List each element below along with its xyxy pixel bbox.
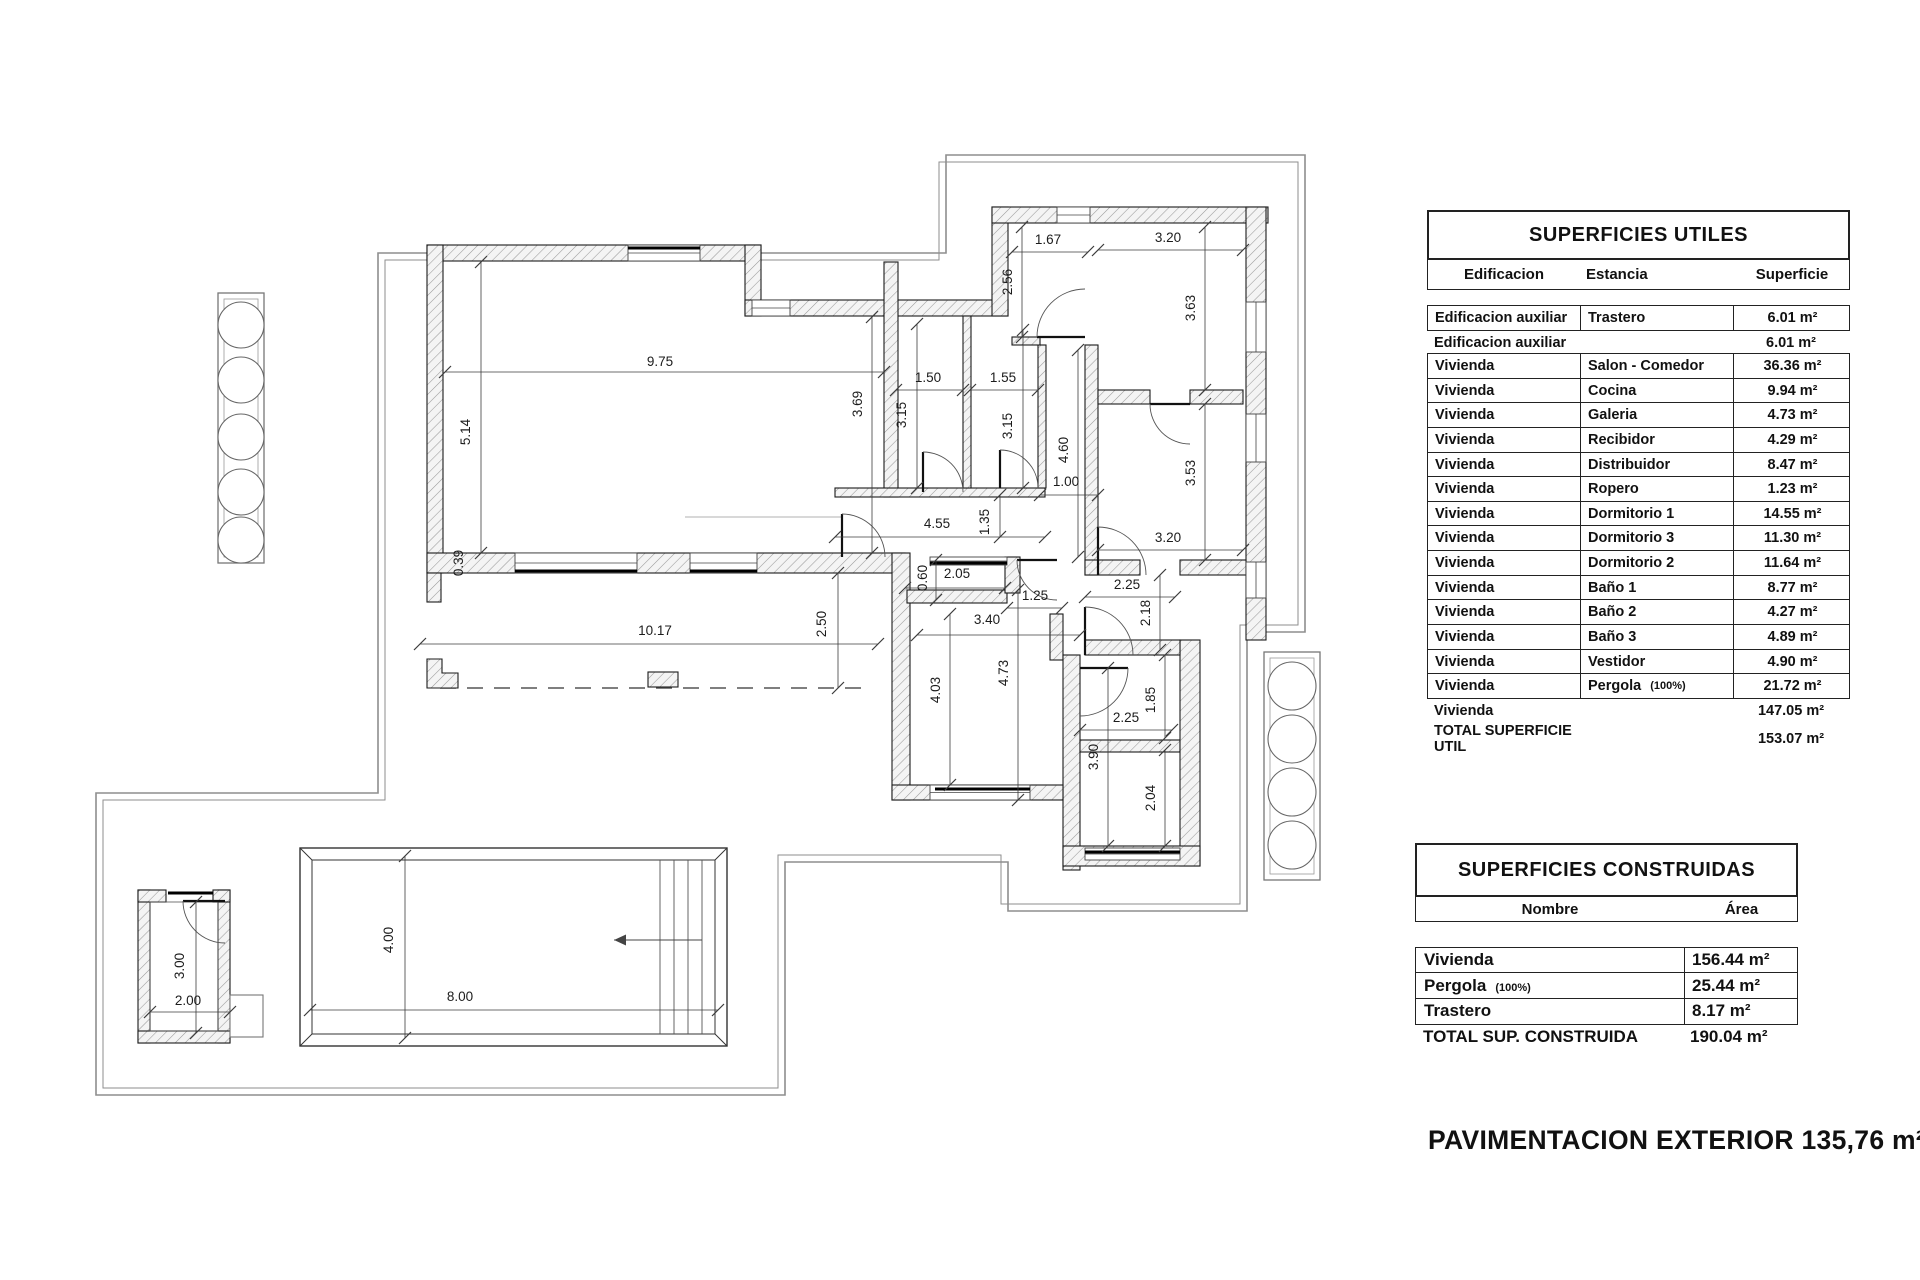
table-cell-edificacion: Vivienda [1428, 678, 1580, 694]
wall [1050, 614, 1063, 660]
table-cell-edificacion: Edificacion auxiliar [1427, 335, 1579, 351]
table-cell-superficie: 4.73 m² [1733, 403, 1851, 427]
dimension-label: 3.15 [1000, 413, 1015, 439]
table-cell-superficie: 153.07 m² [1732, 731, 1850, 747]
dimension-label: 2.00 [175, 993, 201, 1008]
wall [1063, 655, 1080, 870]
table-cell-estancia: Ropero [1580, 477, 1733, 501]
door-swing-arc [1037, 289, 1085, 337]
table-cell-estancia: Baño 2 [1580, 600, 1733, 624]
dimension-label: 2.04 [1143, 784, 1158, 811]
column-header-superficie: Superficie [1733, 266, 1851, 283]
column-header-nombre: Nombre [1416, 901, 1684, 918]
table-cell-area: 8.17 m² [1684, 999, 1799, 1024]
table-cell-superficie: 11.30 m² [1733, 526, 1851, 550]
trastero-annex-box [230, 995, 263, 1037]
table-cell-edificacion: Vivienda [1428, 530, 1580, 546]
dimension-label: 4.60 [1056, 437, 1071, 463]
door-swing-arc [1150, 404, 1190, 444]
table-cell-area: 25.44 m² [1684, 973, 1799, 998]
table-cell-nombre: Trastero [1416, 1001, 1684, 1021]
table-cell-superficie: 4.27 m² [1733, 600, 1851, 624]
table-cell-superficie: 6.01 m² [1733, 306, 1851, 330]
page: { "page": {"background": "#ffffff", "lin… [0, 0, 1920, 1280]
wall [138, 890, 166, 902]
tree-icon [1268, 821, 1316, 869]
table-cell-estancia: Vestidor [1580, 650, 1733, 674]
wall [427, 553, 905, 573]
table-cell-area: 156.44 m² [1684, 948, 1799, 973]
table-cell-estancia: Salon - Comedor [1580, 354, 1733, 378]
dimension-label: 4.73 [996, 660, 1011, 686]
tree-icon [1268, 715, 1316, 763]
table-row: Vivienda156.44 m² [1415, 947, 1798, 974]
wall [1038, 345, 1046, 488]
column-header-estancia: Estancia [1580, 266, 1733, 283]
table-title: SUPERFICIES CONSTRUIDAS [1415, 843, 1798, 897]
table-cell-estancia: Cocina [1580, 379, 1733, 403]
table-cell-area: 190.04 m² [1683, 1027, 1798, 1047]
table-cell-nombre: Pergola(100%) [1416, 976, 1684, 996]
tree-icon [218, 469, 264, 515]
table-row: ViviendaDistribuidor8.47 m² [1427, 452, 1850, 478]
tree-icon [218, 517, 264, 563]
dimension-label: 1.25 [1022, 588, 1048, 603]
dimension-label: 2.05 [944, 566, 970, 581]
table-cell-superficie: 36.36 m² [1733, 354, 1851, 378]
wall [963, 316, 971, 488]
table-cell-estancia: Pergola(100%) [1580, 674, 1733, 698]
wall [1180, 640, 1200, 866]
wall [1098, 390, 1150, 404]
pergola-pillar-L [427, 659, 458, 688]
wall [1012, 337, 1040, 345]
tree-icon [1268, 662, 1316, 710]
table-row: TOTAL SUPERFICIE UTIL153.07 m² [1427, 723, 1850, 747]
table-cell-estancia: Trastero [1580, 306, 1733, 330]
table-row: Edificacion auxiliar6.01 m² [1427, 331, 1850, 355]
table-cell-estancia: Distribuidor [1580, 453, 1733, 477]
dimension-label: 3.00 [172, 953, 187, 979]
wall [218, 890, 230, 1043]
table-cell-edificacion: TOTAL SUPERFICIE UTIL [1427, 723, 1579, 755]
wall [427, 245, 761, 261]
table-cell-superficie: 147.05 m² [1732, 703, 1850, 719]
wall [1085, 560, 1140, 575]
dimension-label: 1.55 [990, 370, 1016, 385]
dimension-label: 3.69 [850, 391, 865, 417]
dimension-label: 4.55 [924, 516, 950, 531]
wall [427, 245, 443, 573]
table-cell-estancia: Dormitorio 1 [1580, 502, 1733, 526]
door-swing-arc [1000, 450, 1038, 488]
table-cell-edificacion: Vivienda [1428, 358, 1580, 374]
table-cell-superficie: 4.90 m² [1733, 650, 1851, 674]
table-column-headers: Nombre Área [1415, 897, 1798, 922]
dimension-label: 2.56 [1000, 269, 1015, 295]
dimension-label: 1.35 [977, 509, 992, 535]
table-cell-superficie: 21.72 m² [1733, 674, 1851, 698]
table-row: ViviendaSalon - Comedor36.36 m² [1427, 353, 1850, 379]
dimension-label: 4.00 [381, 927, 396, 953]
table-row: Trastero8.17 m² [1415, 998, 1798, 1025]
table-cell-edificacion: Vivienda [1428, 629, 1580, 645]
door-swing-arc [1080, 668, 1128, 716]
table-cell-superficie: 1.23 m² [1733, 477, 1851, 501]
table-superficies-utiles: SUPERFICIES UTILES Edificacion Estancia … [1427, 210, 1850, 747]
table-cell-superficie: 9.94 m² [1733, 379, 1851, 403]
table-column-headers: Edificacion Estancia Superficie [1427, 260, 1850, 290]
dimension-label: 8.00 [447, 989, 473, 1004]
table-row: ViviendaDormitorio 211.64 m² [1427, 550, 1850, 576]
wall [884, 262, 898, 497]
table-cell-estancia: Dormitorio 2 [1580, 551, 1733, 575]
column-header-area: Área [1684, 901, 1799, 918]
table-cell-nombre: Vivienda [1416, 950, 1684, 970]
column-header-edificacion: Edificacion [1428, 266, 1580, 283]
table-cell-superficie: 8.77 m² [1733, 576, 1851, 600]
pavimentacion-exterior-label: PAVIMENTACION EXTERIOR 135,76 m² [1428, 1125, 1920, 1156]
table-row: ViviendaDormitorio 311.30 m² [1427, 525, 1850, 551]
table-row: ViviendaRopero1.23 m² [1427, 476, 1850, 502]
dimension-label: 2.50 [814, 611, 829, 637]
table-rows: Edificacion auxiliarTrastero6.01 m²Edifi… [1427, 305, 1850, 748]
dimension-label: 0.39 [451, 550, 466, 576]
pool-outer [300, 848, 727, 1046]
dimension-label: 3.20 [1155, 230, 1181, 245]
tree-icon [218, 357, 264, 403]
wall [835, 488, 1045, 497]
dimension-label: 1.50 [915, 370, 941, 385]
table-row: ViviendaBaño 24.27 m² [1427, 599, 1850, 625]
table-title: SUPERFICIES UTILES [1427, 210, 1850, 260]
wall [138, 890, 150, 1043]
wall [1085, 345, 1098, 575]
dimension-label: 3.40 [974, 612, 1000, 627]
table-row: ViviendaGaleria4.73 m² [1427, 402, 1850, 428]
table-row: ViviendaBaño 18.77 m² [1427, 575, 1850, 601]
tree-icon [218, 302, 264, 348]
table-rows: Vivienda156.44 m²Pergola(100%)25.44 m²Tr… [1415, 947, 1798, 1050]
wall [427, 573, 441, 602]
pergola-pillar [648, 672, 678, 687]
table-row: ViviendaDormitorio 114.55 m² [1427, 501, 1850, 527]
dimension-label: 9.75 [647, 354, 673, 369]
dimension-label: 1.67 [1035, 232, 1061, 247]
table-cell-edificacion: Vivienda [1428, 432, 1580, 448]
table-row: ViviendaVestidor4.90 m² [1427, 649, 1850, 675]
table-cell-superficie: 4.89 m² [1733, 625, 1851, 649]
table-cell-edificacion: Vivienda [1428, 383, 1580, 399]
wall [138, 1031, 230, 1043]
dimension-label: 10.17 [638, 623, 672, 638]
table-row: Edificacion auxiliarTrastero6.01 m² [1427, 305, 1850, 331]
table-cell-estancia: Dormitorio 3 [1580, 526, 1733, 550]
table-superficies-construidas: SUPERFICIES CONSTRUIDAS Nombre Área Vivi… [1415, 843, 1798, 1050]
table-cell-edificacion: Vivienda [1428, 654, 1580, 670]
table-cell-estancia: Galeria [1580, 403, 1733, 427]
table-cell-edificacion: Vivienda [1428, 407, 1580, 423]
door-swing-arc [842, 514, 885, 557]
door-swing-arc [923, 452, 963, 492]
table-cell-superficie: 6.01 m² [1732, 335, 1850, 351]
table-cell-edificacion: Vivienda [1428, 457, 1580, 473]
table-row: ViviendaRecibidor4.29 m² [1427, 427, 1850, 453]
dimension-label: 3.53 [1183, 460, 1198, 486]
dimension-label: 1.85 [1143, 687, 1158, 713]
dimension-label: 3.20 [1155, 530, 1181, 545]
table-cell-edificacion: Vivienda [1428, 555, 1580, 571]
dimension-label: 5.14 [458, 418, 473, 445]
table-cell-superficie: 4.29 m² [1733, 428, 1851, 452]
tree-icon [218, 414, 264, 460]
table-cell-edificacion: Vivienda [1428, 604, 1580, 620]
dimension-label: 2.25 [1113, 710, 1139, 725]
dimension-label: 3.63 [1183, 295, 1198, 321]
table-cell-edificacion: Vivienda [1428, 580, 1580, 596]
dimension-label: 2.25 [1114, 577, 1140, 592]
dimension-label: 2.18 [1138, 600, 1153, 626]
table-cell-nombre: TOTAL SUP. CONSTRUIDA [1415, 1027, 1683, 1047]
dimension-label: 3.90 [1086, 744, 1101, 770]
table-cell-estancia: Baño 1 [1580, 576, 1733, 600]
wall [992, 207, 1268, 223]
tree-icon [1268, 768, 1316, 816]
table-cell-edificacion: Vivienda [1428, 481, 1580, 497]
table-cell-estancia: Recibidor [1580, 428, 1733, 452]
wall [1190, 390, 1243, 404]
wall [1180, 560, 1246, 575]
table-row: ViviendaPergola(100%)21.72 m² [1427, 673, 1850, 699]
table-cell-estancia: Baño 3 [1580, 625, 1733, 649]
table-row: ViviendaCocina9.94 m² [1427, 378, 1850, 404]
dimension-label: 1.00 [1053, 474, 1079, 489]
table-cell-superficie: 14.55 m² [1733, 502, 1851, 526]
dimension-label: 3.15 [894, 402, 909, 428]
table-row: Pergola(100%)25.44 m² [1415, 972, 1798, 999]
table-row: ViviendaBaño 34.89 m² [1427, 624, 1850, 650]
table-row: Vivienda147.05 m² [1427, 699, 1850, 723]
dimension-label: 4.03 [928, 677, 943, 703]
table-cell-edificacion: Vivienda [1428, 506, 1580, 522]
table-cell-edificacion: Edificacion auxiliar [1428, 310, 1580, 326]
table-cell-superficie: 8.47 m² [1733, 453, 1851, 477]
table-cell-edificacion: Vivienda [1427, 703, 1579, 719]
table-row: TOTAL SUP. CONSTRUIDA190.04 m² [1415, 1025, 1798, 1050]
dimension-label: 0.60 [915, 565, 930, 591]
table-cell-superficie: 11.64 m² [1733, 551, 1851, 575]
